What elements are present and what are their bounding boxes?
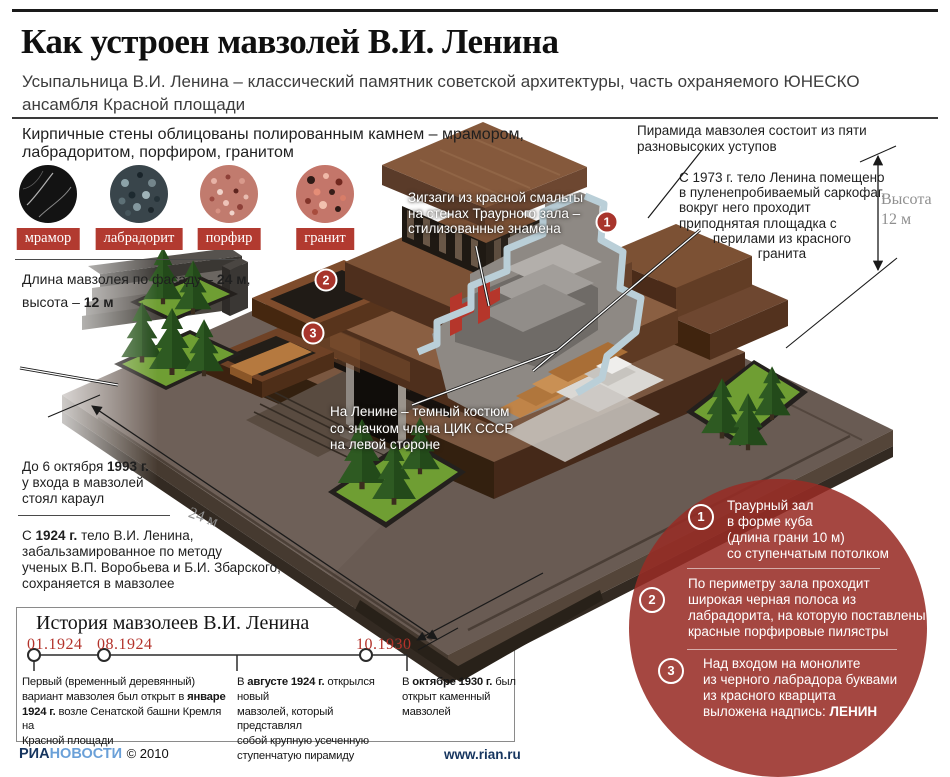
- pyramid-note: Пирамида мавзолея состоит из пятиразновы…: [637, 123, 867, 155]
- copyright: © 2010: [127, 746, 169, 761]
- sarcophagus-platform: [556, 360, 664, 412]
- timeline-date-2: 08.1924: [97, 636, 153, 654]
- timeline-event-2: В августе 1924 г. открылся новыймавзолей…: [237, 675, 397, 764]
- stone-sample-porphyry: [200, 165, 258, 223]
- divider: [15, 259, 237, 260]
- hall-fact-divider: [687, 568, 880, 569]
- stone-label-labradorite: лабрадорит: [96, 228, 183, 250]
- marker-2: 2: [316, 270, 337, 291]
- hall-fact-3-number: 3: [658, 658, 684, 684]
- header-rule: [12, 117, 938, 119]
- hall-fact-1-number: 1: [688, 504, 714, 530]
- hall-fact-1-text: Траурный залв форме куба(длина грани 10 …: [727, 498, 889, 562]
- suit-note: На Ленине – темный костюмсо значком член…: [330, 404, 513, 454]
- stone-sample-marble: [19, 165, 77, 223]
- tribune-parapet-lower: [206, 328, 334, 398]
- height-label: Высота12 м: [881, 190, 932, 230]
- tribune-parapet-upper: [252, 260, 404, 344]
- agency-logo-novosti: НОВОСТИ: [50, 746, 123, 762]
- stone-label-marble: мрамор: [17, 228, 80, 250]
- hall-fact-2-text: По периметру зала проходитширокая черная…: [688, 576, 926, 640]
- stone-label-porphyry: порфир: [198, 228, 261, 250]
- svg-text:1: 1: [604, 216, 611, 230]
- stone-sample-labradorite: [110, 165, 168, 223]
- timeline-date-1: 01.1924: [27, 636, 83, 654]
- marker-3: 3: [303, 323, 324, 344]
- materials-note: Кирпичные стены облицованы полированным …: [22, 126, 524, 162]
- timeline-date-3: 10.1930: [356, 636, 412, 654]
- svg-text:2: 2: [323, 274, 330, 288]
- agency-logo-ria: РИА: [19, 746, 50, 762]
- tier-4: [300, 228, 678, 425]
- infographic-canvas: { "header": { "title": "Как устроен мавз…: [0, 0, 950, 763]
- lenin-sign-text: ЛЕНИН: [325, 344, 415, 395]
- embalmed-note: С 1924 г. тело В.И. Ленина,забальзамиров…: [22, 528, 281, 592]
- stone-sample-granite: [296, 165, 354, 223]
- red-smalt-zigzag: [478, 280, 500, 324]
- top-rule: [12, 9, 938, 12]
- red-smalt-zigzag: [450, 292, 474, 336]
- stone-label-granite: гранит: [296, 228, 354, 250]
- dimensions-note: Длина мавзолея по фасаду – 24 м,высота –…: [22, 268, 251, 314]
- agency-logo: РИАНОВОСТИ © 2010: [19, 745, 169, 763]
- hall-fact-divider: [687, 649, 897, 650]
- sarcophagus-note: С 1973 г. тело Ленина помещенов пуленепр…: [679, 170, 885, 261]
- divider: [18, 515, 170, 516]
- svg-text:3: 3: [310, 327, 317, 341]
- page-title: Как устроен мавзолей В.И. Ленина: [21, 22, 559, 62]
- zigzag-note: Зигзаги из красной смальтына стенах Трау…: [408, 190, 583, 237]
- timeline-event-1: Первый (временный деревянный)вариант мав…: [22, 675, 234, 749]
- site-url: www.rian.ru: [444, 747, 521, 762]
- guard-note: До 6 октября 1993 г.у входа в мавзолейст…: [22, 459, 149, 507]
- timeline-title: История мавзолеев В.И. Ленина: [36, 612, 309, 635]
- marker-1: 1: [597, 212, 618, 233]
- hall-fact-2-number: 2: [639, 587, 665, 613]
- hall-fact-3-text: Над входом на монолитеиз черного лабрадо…: [703, 656, 897, 720]
- timeline-event-3: В октябре 1930 г. былоткрыт каменный мав…: [402, 675, 517, 719]
- page-subtitle: Усыпальница В.И. Ленина – классический п…: [22, 70, 860, 116]
- mausoleum-base-tier: [240, 242, 745, 499]
